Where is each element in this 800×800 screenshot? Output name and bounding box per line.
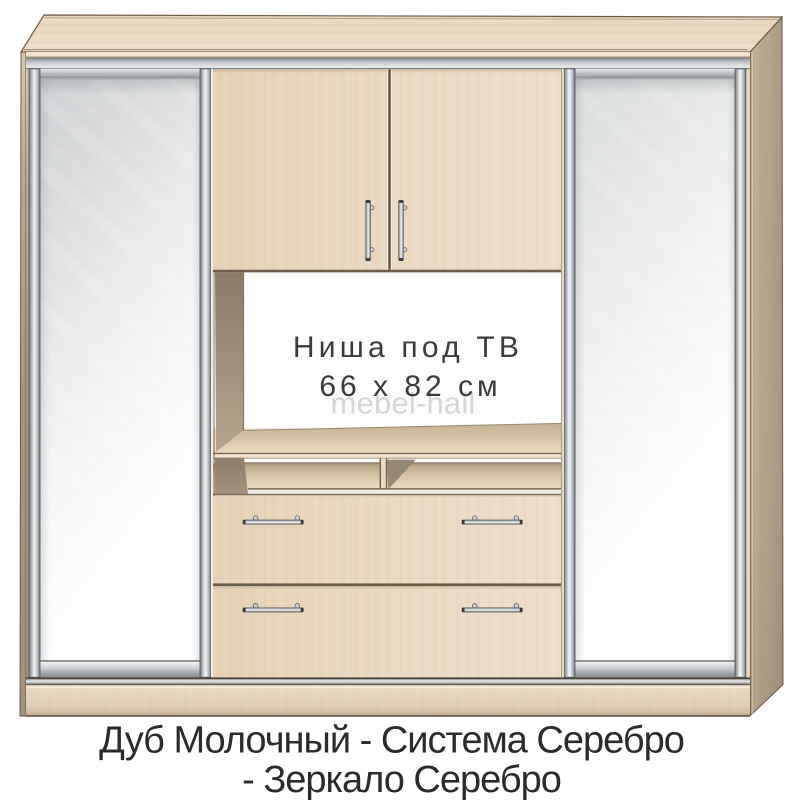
svg-text:- Зеркало Серебро: - Зеркало Серебро <box>242 759 561 800</box>
svg-text:Ниша под ТВ: Ниша под ТВ <box>293 331 523 364</box>
svg-text:Дуб Молочный - Система Серебро: Дуб Молочный - Система Серебро <box>99 720 684 762</box>
svg-text:66 х 82 см: 66 х 82 см <box>319 370 501 403</box>
